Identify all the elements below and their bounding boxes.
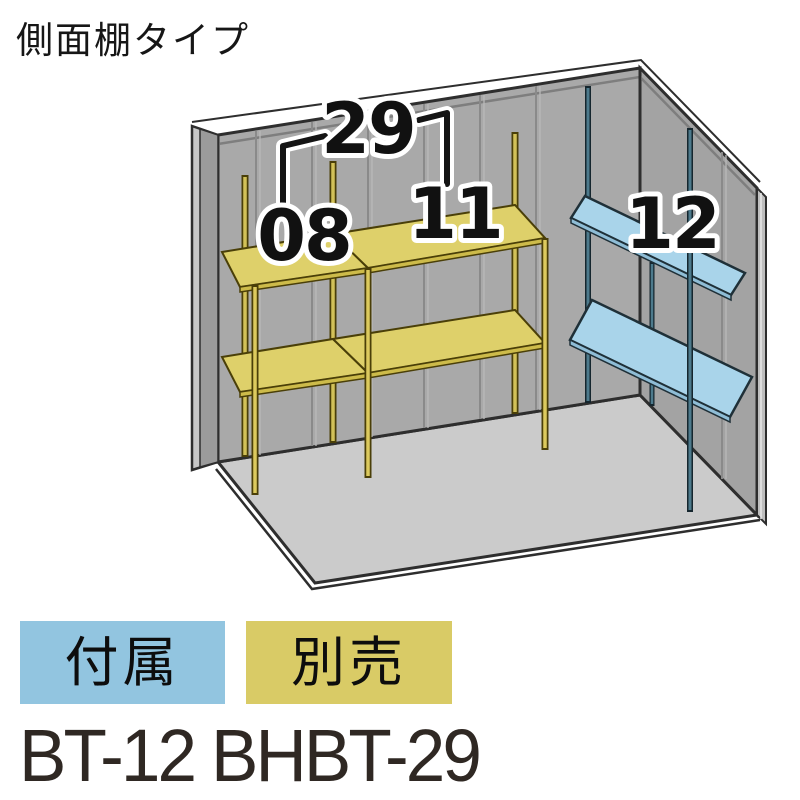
label-span-29: 29 [321, 88, 414, 170]
label-bay-11: 11 [408, 173, 501, 255]
page-title: 側面棚タイプ [16, 10, 250, 64]
label-bay-08: 08 [257, 195, 350, 277]
left-wall-edge [192, 126, 218, 470]
shed-illustration: 29 08 11 12 [0, 0, 800, 800]
label-side-12: 12 [625, 183, 718, 265]
catalog-figure: 29 08 11 12 側面棚タイプ 付属 別売 BT-12 BHBT-29 [0, 0, 800, 800]
left-wall-edge-inner [200, 129, 218, 467]
